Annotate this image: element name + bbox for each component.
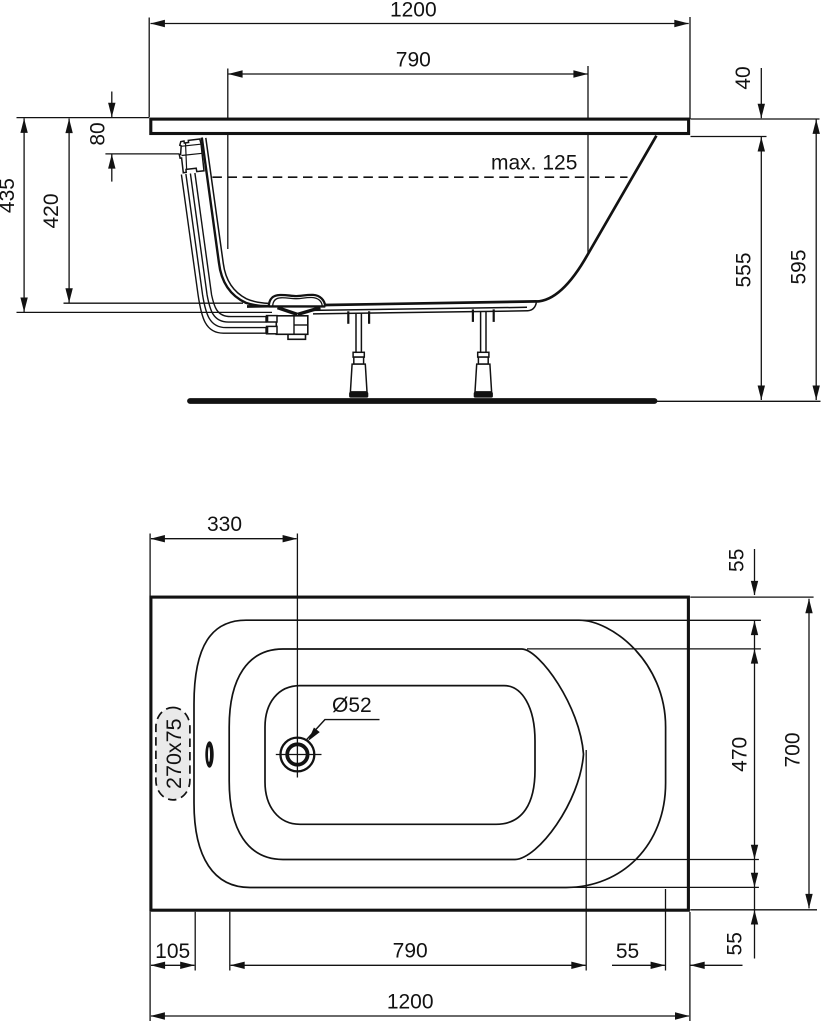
svg-text:790: 790 — [393, 940, 428, 963]
svg-text:1200: 1200 — [387, 991, 434, 1014]
svg-text:105: 105 — [155, 940, 190, 963]
svg-text:max. 125: max. 125 — [491, 152, 577, 175]
svg-text:40: 40 — [732, 66, 755, 89]
svg-text:1200: 1200 — [390, 0, 437, 22]
svg-text:435: 435 — [0, 178, 19, 213]
svg-text:700: 700 — [781, 732, 804, 767]
svg-text:555: 555 — [733, 252, 756, 287]
svg-text:55: 55 — [726, 549, 749, 572]
svg-text:330: 330 — [207, 513, 242, 536]
svg-text:470: 470 — [729, 737, 752, 772]
svg-text:595: 595 — [788, 249, 811, 284]
svg-text:420: 420 — [40, 193, 63, 228]
svg-text:270x75: 270x75 — [162, 718, 186, 789]
svg-text:790: 790 — [396, 49, 431, 72]
svg-text:80: 80 — [87, 122, 110, 145]
svg-text:55: 55 — [724, 932, 747, 955]
svg-text:Ø52: Ø52 — [332, 694, 372, 717]
svg-text:55: 55 — [616, 940, 639, 963]
